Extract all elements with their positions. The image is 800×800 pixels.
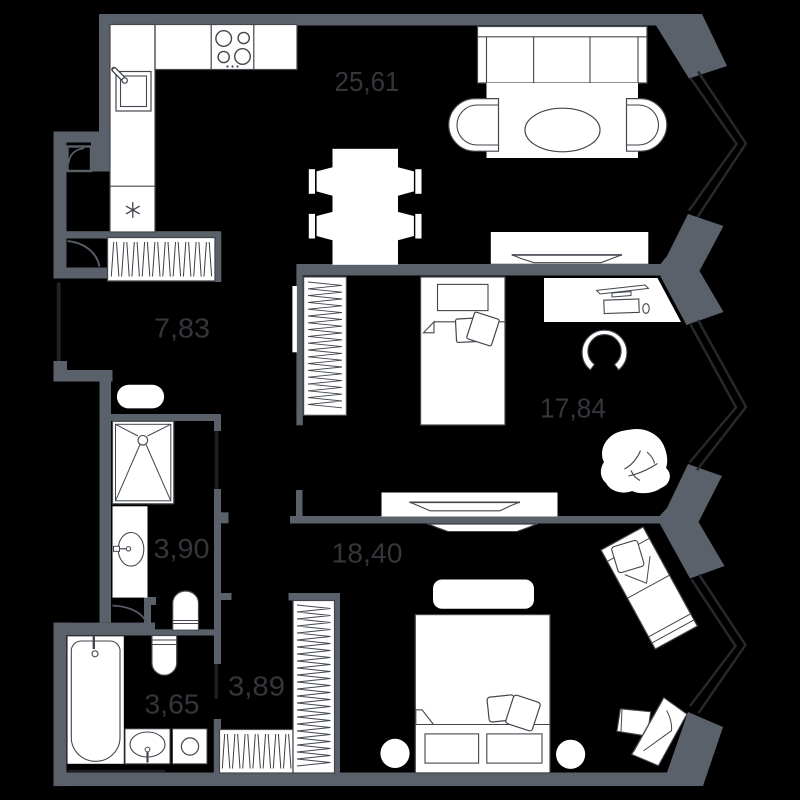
svg-text:25,61: 25,61 [335, 66, 400, 97]
svg-text:3,89: 3,89 [228, 671, 285, 702]
svg-text:7,83: 7,83 [154, 313, 210, 344]
svg-text:3,90: 3,90 [154, 533, 210, 564]
svg-text:3,65: 3,65 [145, 689, 200, 720]
svg-text:18,40: 18,40 [332, 538, 403, 569]
svg-text:17,84: 17,84 [540, 393, 606, 424]
